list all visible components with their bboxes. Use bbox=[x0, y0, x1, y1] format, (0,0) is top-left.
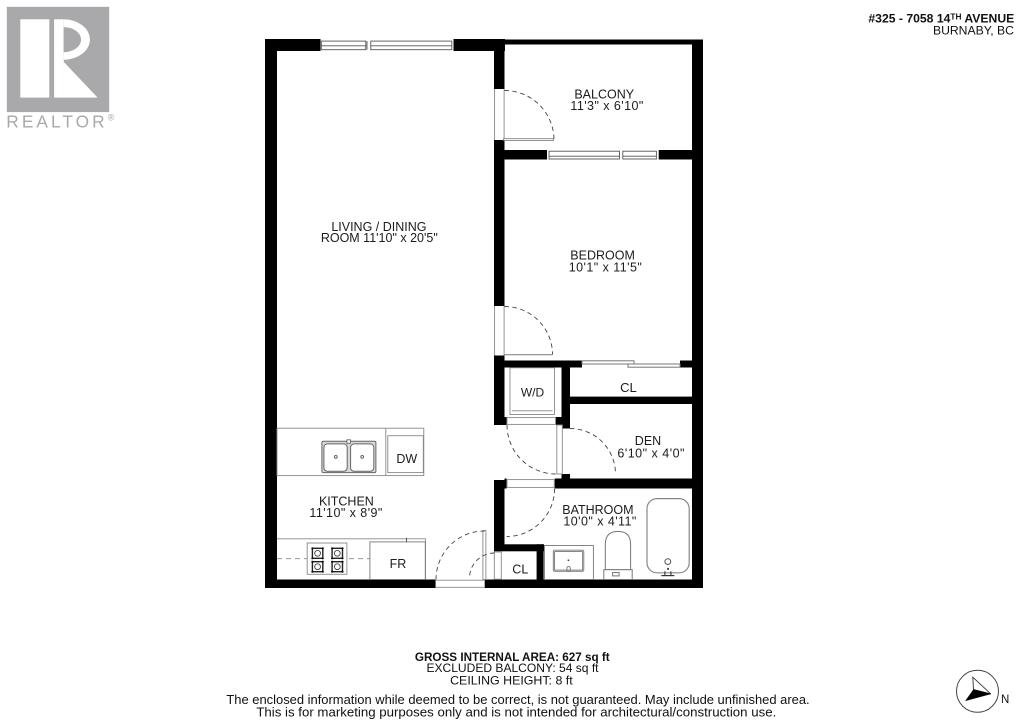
svg-text:DW: DW bbox=[396, 452, 417, 466]
svg-text:REALTOR®: REALTOR® bbox=[6, 112, 117, 132]
svg-text:11'10" x 8'9": 11'10" x 8'9" bbox=[309, 506, 382, 520]
svg-text:BURNABY, BC: BURNABY, BC bbox=[933, 24, 1014, 38]
svg-text:This is for marketing purposes: This is for marketing purposes only and … bbox=[256, 705, 776, 720]
svg-text:CEILING HEIGHT: 8 ft: CEILING HEIGHT: 8 ft bbox=[450, 673, 573, 687]
svg-text:10'1" x 11'5": 10'1" x 11'5" bbox=[569, 260, 642, 274]
svg-text:11'3" x 6'10": 11'3" x 6'10" bbox=[570, 99, 643, 113]
svg-text:10'0" x 4'11": 10'0" x 4'11" bbox=[563, 515, 636, 529]
svg-text:CL: CL bbox=[620, 380, 637, 395]
svg-text:FR: FR bbox=[390, 557, 407, 571]
svg-text:CL: CL bbox=[512, 562, 528, 576]
svg-text:6'10" x 4'0": 6'10" x 4'0" bbox=[617, 446, 685, 460]
svg-text:N: N bbox=[1001, 694, 1009, 706]
svg-text:ROOM 11'10" x 20'5": ROOM 11'10" x 20'5" bbox=[321, 231, 438, 245]
svg-text:W/D: W/D bbox=[521, 385, 545, 399]
